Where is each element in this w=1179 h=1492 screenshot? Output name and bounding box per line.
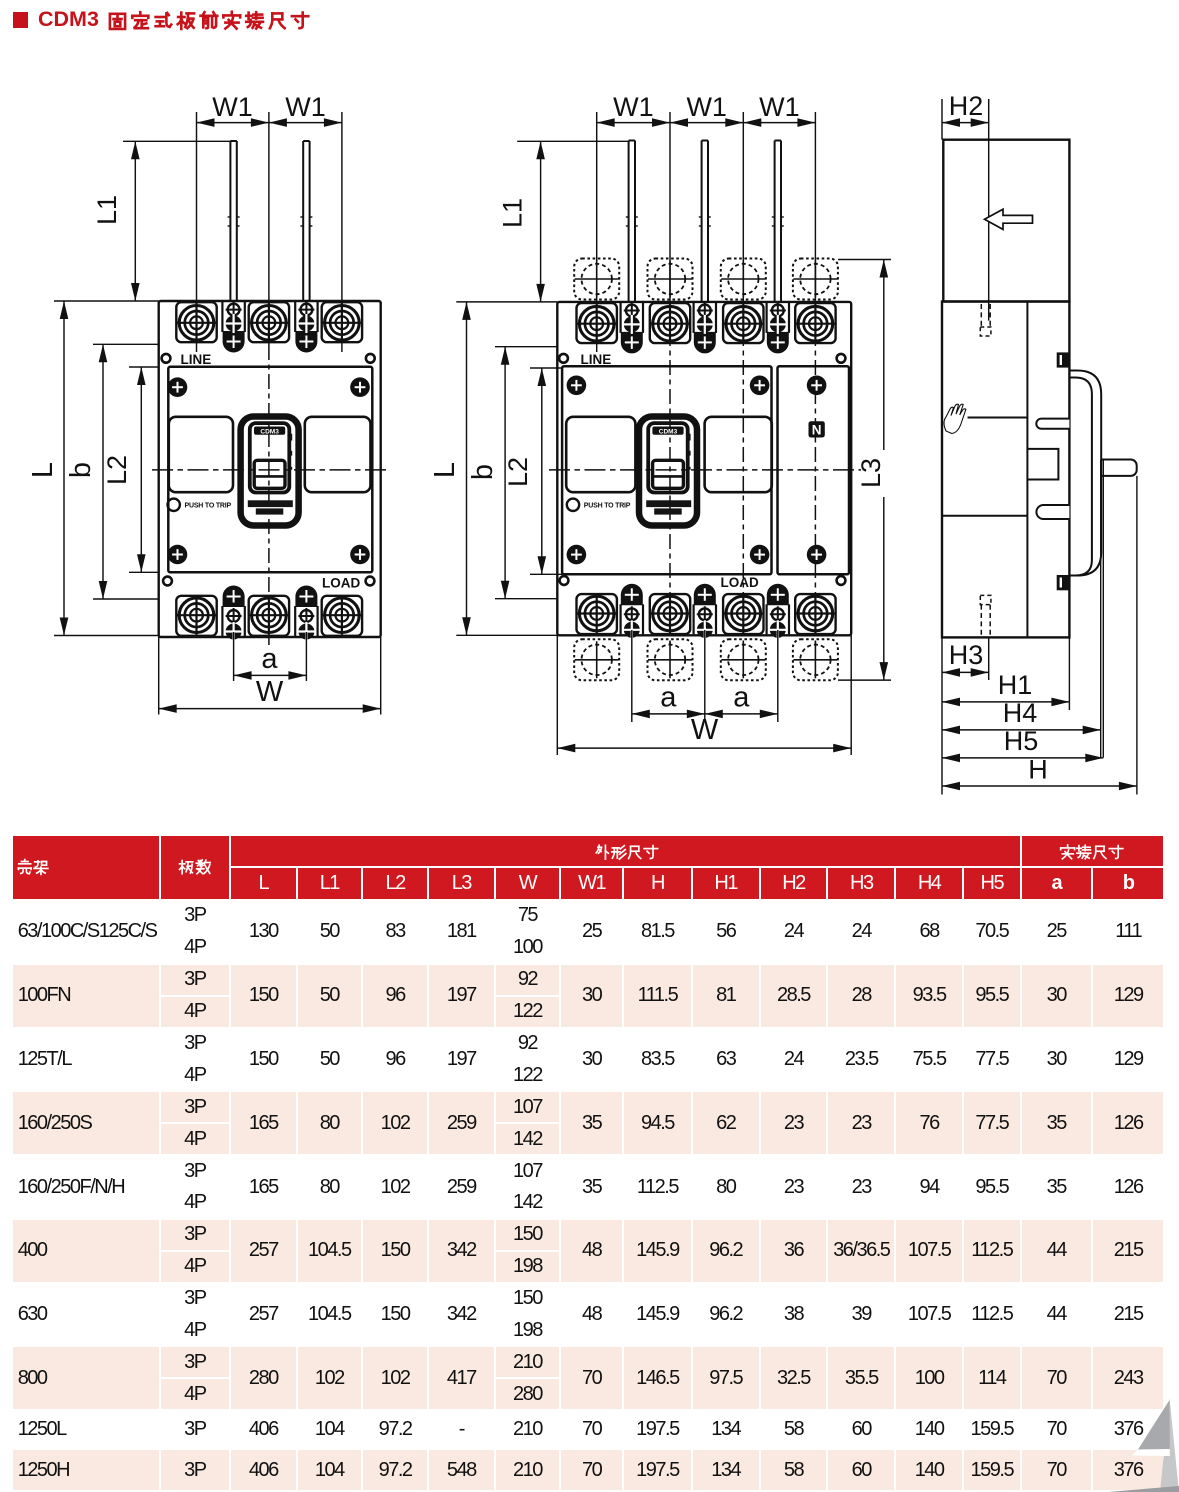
svg-text:L: L: [429, 462, 461, 478]
svg-text:W1: W1: [613, 92, 654, 122]
svg-text:a: a: [660, 682, 677, 714]
svg-text:a: a: [733, 682, 750, 714]
svg-text:PUSH TO TRIP: PUSH TO TRIP: [185, 503, 232, 510]
svg-text:W1: W1: [285, 92, 326, 122]
svg-text:H3: H3: [949, 640, 984, 670]
svg-text:L2: L2: [102, 455, 132, 485]
svg-text:W: W: [256, 676, 284, 708]
svg-text:H2: H2: [949, 91, 984, 121]
svg-text:a: a: [261, 643, 278, 675]
svg-text:PUSH TO TRIP: PUSH TO TRIP: [584, 503, 631, 510]
svg-text:W1: W1: [759, 92, 800, 122]
svg-text:L1: L1: [92, 195, 122, 225]
svg-text:H4: H4: [1003, 698, 1038, 728]
svg-text:LINE: LINE: [181, 352, 212, 367]
svg-text:W1: W1: [212, 92, 253, 122]
svg-text:CDM3: CDM3: [260, 429, 279, 436]
svg-text:L1: L1: [498, 198, 528, 228]
svg-text:W: W: [691, 714, 719, 746]
svg-text:H5: H5: [1004, 726, 1039, 756]
svg-text:H: H: [1028, 755, 1048, 785]
svg-text:L: L: [27, 462, 59, 478]
svg-text:CDM3: CDM3: [659, 429, 678, 436]
svg-text:LINE: LINE: [581, 352, 612, 367]
svg-text:LOAD: LOAD: [322, 576, 360, 591]
svg-text:LOAD: LOAD: [721, 575, 759, 590]
svg-text:L2: L2: [503, 457, 533, 487]
svg-text:W1: W1: [686, 92, 727, 122]
svg-text:b: b: [467, 464, 499, 480]
svg-text:b: b: [65, 462, 97, 478]
svg-text:L3: L3: [856, 458, 886, 488]
svg-text:N: N: [812, 422, 822, 437]
svg-text:H1: H1: [998, 670, 1033, 700]
